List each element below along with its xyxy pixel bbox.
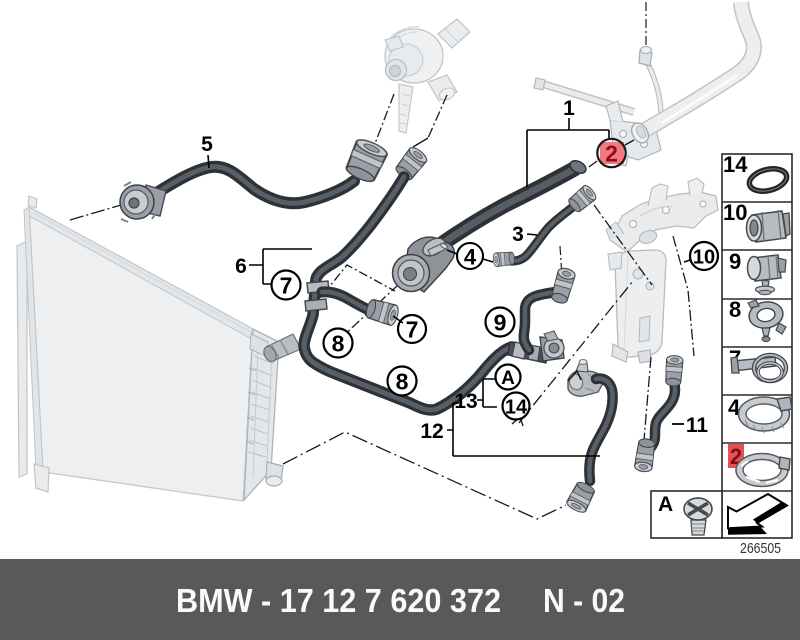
svg-text:1: 1	[563, 97, 575, 120]
svg-text:3: 3	[512, 223, 524, 246]
svg-text:266505: 266505	[740, 540, 781, 557]
svg-text:N - 02: N - 02	[543, 582, 625, 619]
svg-text:8: 8	[332, 331, 345, 357]
svg-text:9: 9	[729, 249, 741, 274]
svg-text:10: 10	[693, 247, 715, 269]
svg-text:9: 9	[494, 310, 507, 336]
svg-text:2: 2	[605, 141, 618, 167]
svg-text:BMW - 17 12 7 620 372: BMW - 17 12 7 620 372	[176, 582, 501, 619]
svg-text:10: 10	[723, 200, 747, 225]
svg-text:A: A	[501, 368, 515, 389]
svg-text:7: 7	[406, 317, 419, 343]
svg-text:11: 11	[686, 414, 709, 437]
svg-text:7: 7	[280, 273, 293, 299]
svg-text:4: 4	[464, 245, 477, 270]
svg-text:13: 13	[454, 390, 477, 413]
svg-text:6: 6	[235, 255, 247, 278]
svg-text:8: 8	[729, 297, 741, 322]
svg-text:14: 14	[505, 397, 528, 419]
svg-text:12: 12	[420, 420, 443, 443]
svg-text:8: 8	[396, 369, 409, 395]
svg-text:14: 14	[723, 152, 748, 177]
svg-text:A: A	[658, 493, 673, 516]
svg-text:5: 5	[201, 133, 213, 156]
